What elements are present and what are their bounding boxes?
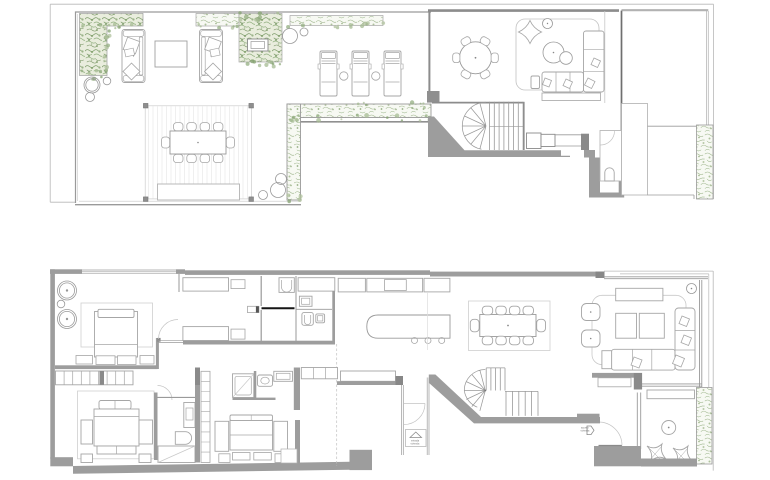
svg-text:vivienda: vivienda	[411, 443, 420, 446]
svg-text:vivienda: vivienda	[581, 430, 590, 433]
